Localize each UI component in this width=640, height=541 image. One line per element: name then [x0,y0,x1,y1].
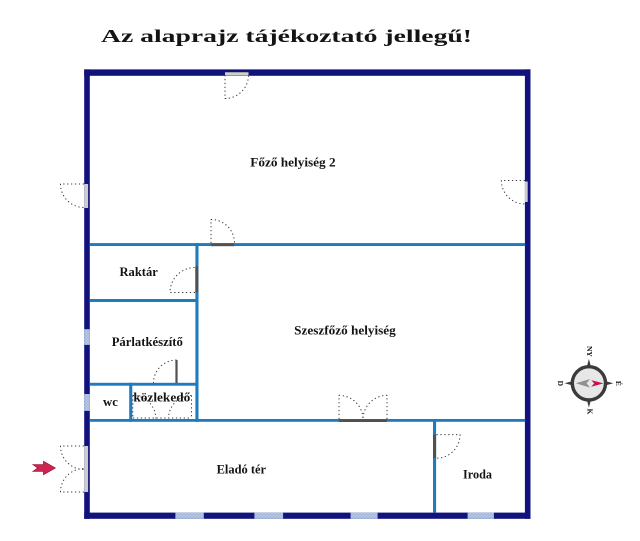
svg-text:közlekedő: közlekedő [133,389,190,404]
svg-text:K: K [585,409,594,415]
svg-text:Párlatkészítő: Párlatkészítő [112,334,184,349]
svg-text:É: É [614,381,624,386]
svg-text:Raktár: Raktár [120,264,159,279]
svg-text:D: D [556,381,565,387]
svg-text:Eladó tér: Eladó tér [217,462,267,477]
svg-text:Főző helyiség 2: Főző helyiség 2 [250,155,335,170]
svg-text:Az alaprajz tájékoztató jelleg: Az alaprajz tájékoztató jellegű! [101,26,472,46]
svg-text:Iroda: Iroda [463,467,492,482]
svg-text:wc: wc [103,394,118,409]
svg-text:Szeszfőző helyiség: Szeszfőző helyiség [294,322,396,337]
svg-text:NY: NY [585,346,594,357]
